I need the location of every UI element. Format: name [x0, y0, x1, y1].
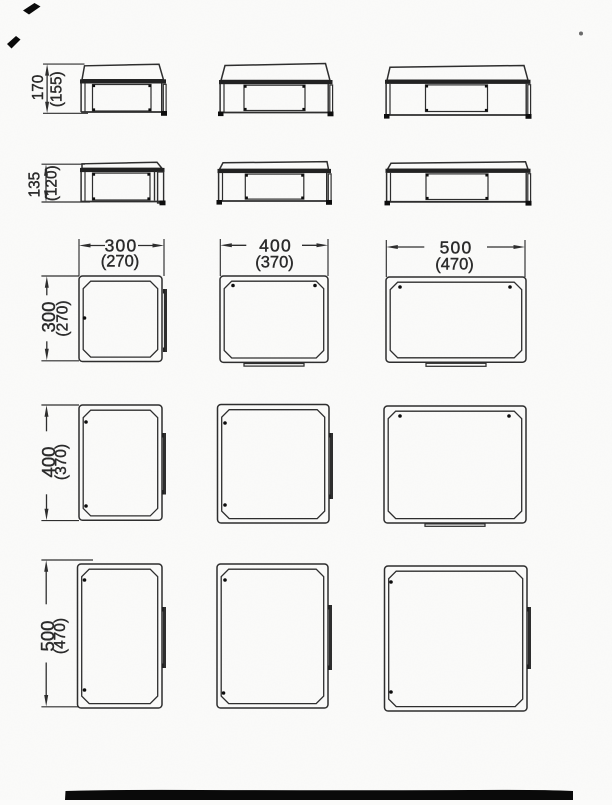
svg-text:500: 500 [440, 238, 473, 258]
svg-text:(270): (270) [101, 253, 140, 271]
svg-text:(370): (370) [255, 254, 294, 272]
svg-text:170: 170 [30, 75, 47, 101]
svg-text:(120): (120) [44, 165, 61, 201]
svg-text:(470): (470) [435, 256, 474, 274]
svg-text:(370): (370) [53, 444, 70, 480]
svg-text:400: 400 [259, 236, 292, 256]
svg-text:(155): (155) [48, 71, 65, 107]
svg-text:(270): (270) [55, 300, 72, 336]
svg-text:(470): (470) [52, 618, 69, 654]
svg-text:135: 135 [26, 172, 43, 198]
